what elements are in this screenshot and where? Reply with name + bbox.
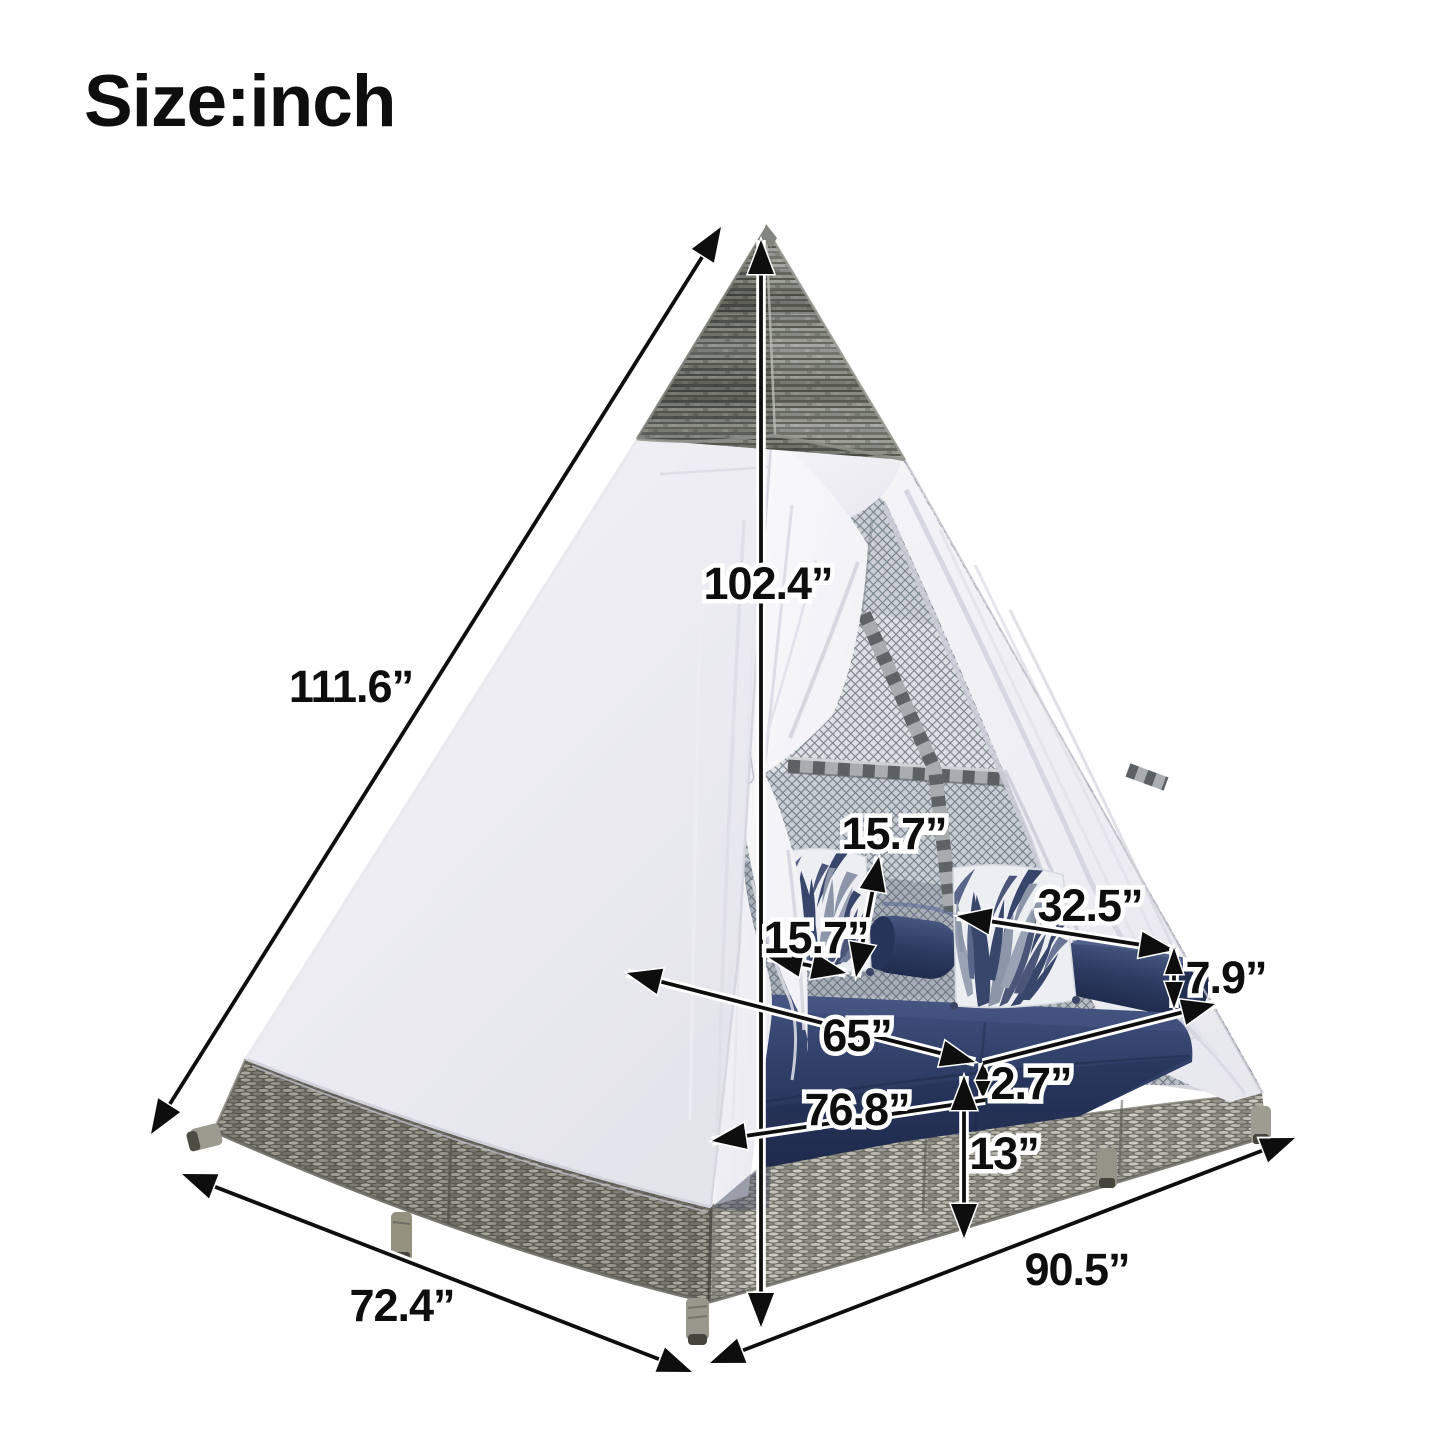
svg-text:2.7”: 2.7”	[990, 1058, 1071, 1109]
svg-text:72.4”: 72.4”	[349, 1280, 454, 1331]
svg-text:102.4”: 102.4”	[703, 558, 832, 609]
svg-text:65”: 65”	[822, 1010, 892, 1061]
svg-text:15.7”: 15.7”	[841, 808, 946, 859]
svg-text:111.6”: 111.6”	[289, 661, 413, 712]
svg-text:7.9”: 7.9”	[1185, 952, 1266, 1003]
svg-text:76.8”: 76.8”	[804, 1084, 909, 1135]
svg-text:Size:inch: Size:inch	[84, 61, 395, 142]
svg-text:90.5”: 90.5”	[1024, 1244, 1129, 1295]
svg-text:15.7”: 15.7”	[763, 912, 868, 963]
svg-text:13”: 13”	[969, 1128, 1039, 1179]
svg-text:32.5”: 32.5”	[1037, 880, 1142, 931]
